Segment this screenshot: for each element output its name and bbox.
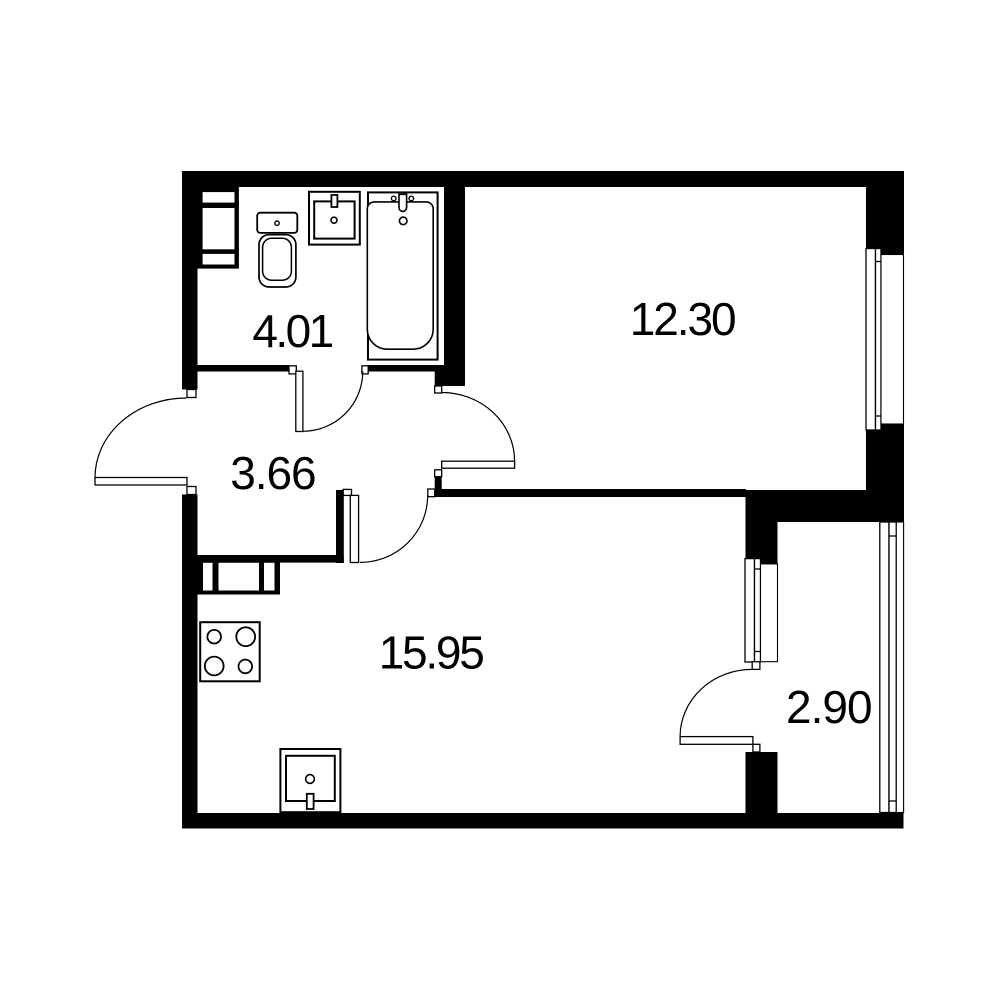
svg-text:2.90: 2.90 xyxy=(786,681,873,733)
svg-text:15.95: 15.95 xyxy=(379,627,485,679)
svg-text:3.66: 3.66 xyxy=(230,447,316,499)
svg-text:12.30: 12.30 xyxy=(630,293,737,345)
svg-text:4.01: 4.01 xyxy=(252,305,334,357)
